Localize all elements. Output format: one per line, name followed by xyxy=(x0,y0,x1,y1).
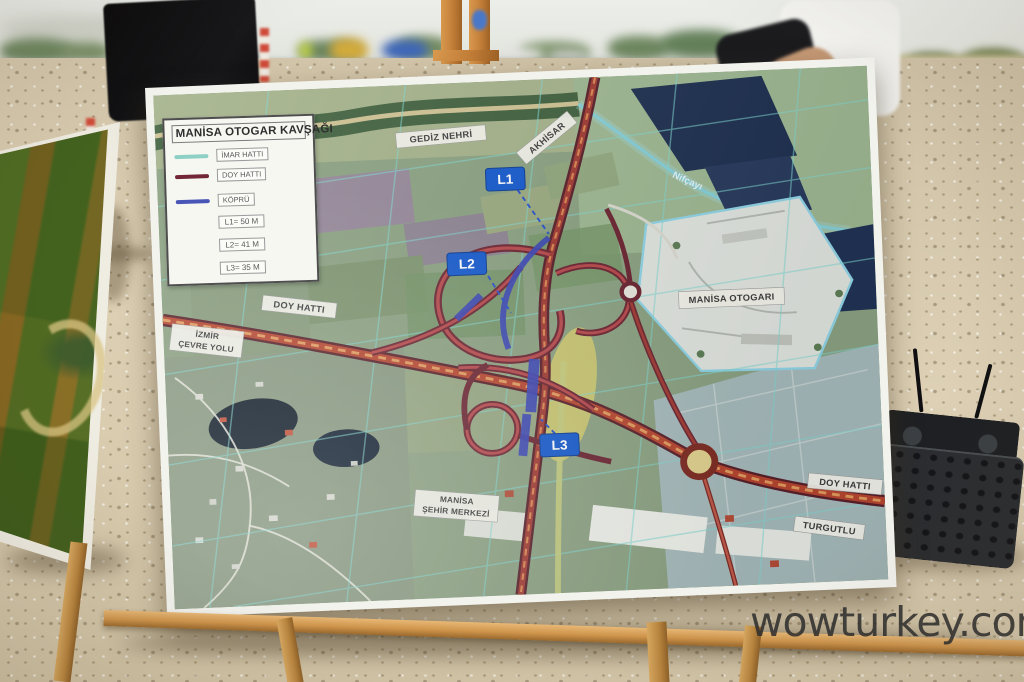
legend-label: DOY HATTI xyxy=(217,167,267,182)
legend-measurement: L1= 50 M xyxy=(218,209,309,230)
sign-l3-label: L3 xyxy=(551,437,568,452)
sign-l2: L2 xyxy=(447,252,487,276)
measurement-l1: L1= 50 M xyxy=(218,214,264,228)
photo-scene: L1 L2 L3 GEDİZ NEHRİ AKHİSAR xyxy=(0,0,1024,682)
legend-row: İMAR HATTI xyxy=(172,146,306,163)
measurement-l2: L2= 41 M xyxy=(219,237,265,251)
watermark: wowturkey.com xyxy=(750,598,1024,646)
legend-row: DOY HATTI xyxy=(173,166,307,183)
sign-l2-label: L2 xyxy=(459,256,476,271)
legend-label: İMAR HATTI xyxy=(216,147,268,162)
legend-row: KÖPRÜ xyxy=(174,191,308,208)
map-board: L1 L2 L3 GEDİZ NEHRİ AKHİSAR xyxy=(145,57,897,617)
village-area xyxy=(164,348,414,610)
legend-measurement: L3= 35 M xyxy=(220,255,311,276)
easel-leg xyxy=(646,622,669,682)
legend-title: MANİSA OTOGAR KAVŞAĞI xyxy=(171,121,305,143)
sign-l3: L3 xyxy=(540,433,580,457)
legend-box: MANİSA OTOGAR KAVŞAĞI İMAR HATTI DOY HAT… xyxy=(162,114,319,287)
traffic-pole xyxy=(260,28,269,82)
kopru-swatch xyxy=(176,199,210,204)
small-roundabout xyxy=(621,283,639,301)
legend-label: KÖPRÜ xyxy=(218,193,255,207)
large-roundabout xyxy=(683,446,716,477)
measurement-l3: L3= 35 M xyxy=(220,260,266,274)
tarp-blob xyxy=(382,40,428,60)
map: L1 L2 L3 GEDİZ NEHRİ AKHİSAR xyxy=(153,66,888,609)
sign-l1: L1 xyxy=(485,167,525,191)
worker-vest-blob xyxy=(300,42,311,59)
doy-hatti-swatch xyxy=(175,174,209,179)
road-sign-blob xyxy=(472,10,487,30)
imar-hatti-swatch xyxy=(174,154,208,159)
legend-measurement: L2= 41 M xyxy=(219,232,310,253)
easel-crossbar xyxy=(433,50,499,61)
sign-l1-label: L1 xyxy=(497,172,514,187)
